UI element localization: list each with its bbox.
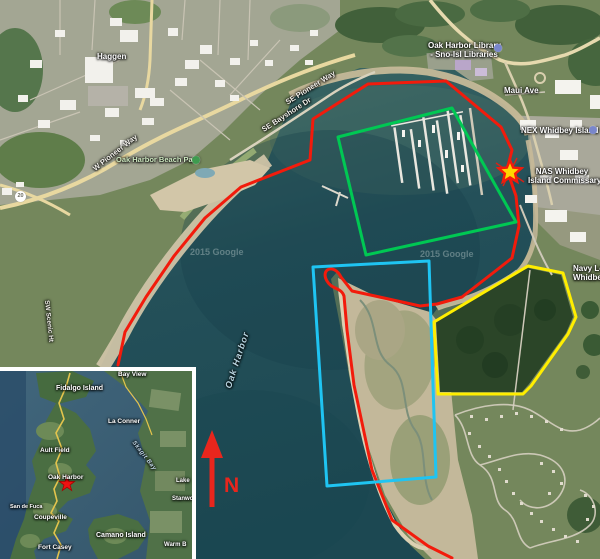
satellite-map-figure: N Haggen W Pioneer Way Oak Harbor Beach … [0,0,600,559]
route-20-shield: 20 [15,191,26,202]
inset-basemap [0,371,192,559]
park-icon [192,156,200,164]
nex-icon [589,126,597,134]
north-label: N [224,474,239,497]
inset-locator-map: Bay View Fidalgo Island La Conner Ault F… [0,367,196,559]
library-icon [494,44,502,52]
